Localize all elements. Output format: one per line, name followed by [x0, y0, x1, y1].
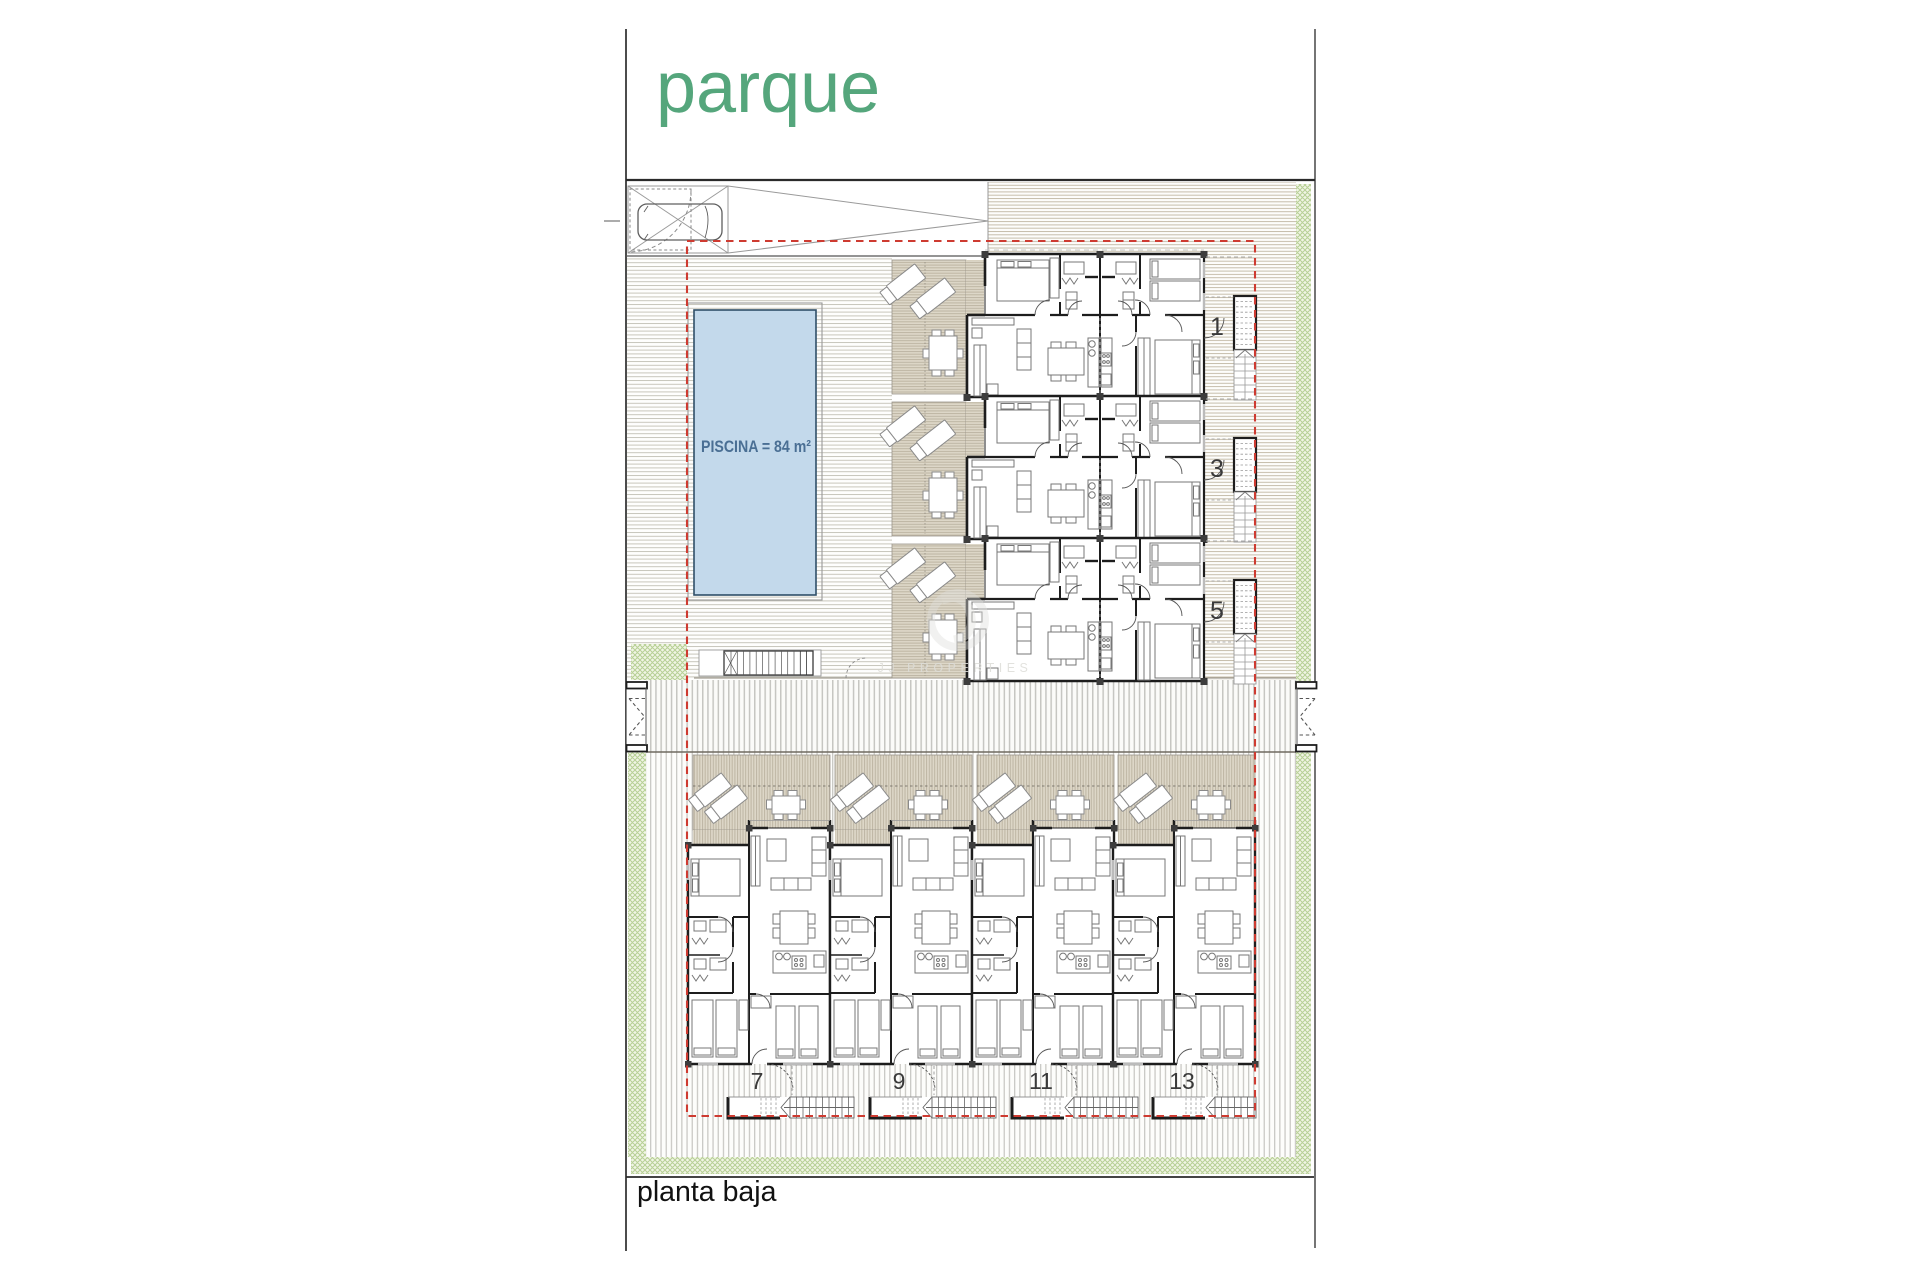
svg-text:5: 5 — [1210, 597, 1224, 625]
svg-text:9: 9 — [893, 1068, 906, 1094]
svg-text:PISCINA = 84 m²: PISCINA = 84 m² — [701, 437, 811, 456]
svg-text:3: 3 — [1210, 455, 1224, 483]
svg-text:11: 11 — [1029, 1068, 1053, 1094]
svg-text:parque: parque — [656, 48, 880, 128]
svg-text:7: 7 — [751, 1068, 764, 1094]
svg-text:13: 13 — [1169, 1068, 1195, 1094]
svg-text:planta baja: planta baja — [637, 1176, 777, 1208]
svg-text:1: 1 — [1210, 313, 1224, 341]
svg-text:JJ PROPERTIES: JJ PROPERTIES — [878, 661, 1033, 675]
